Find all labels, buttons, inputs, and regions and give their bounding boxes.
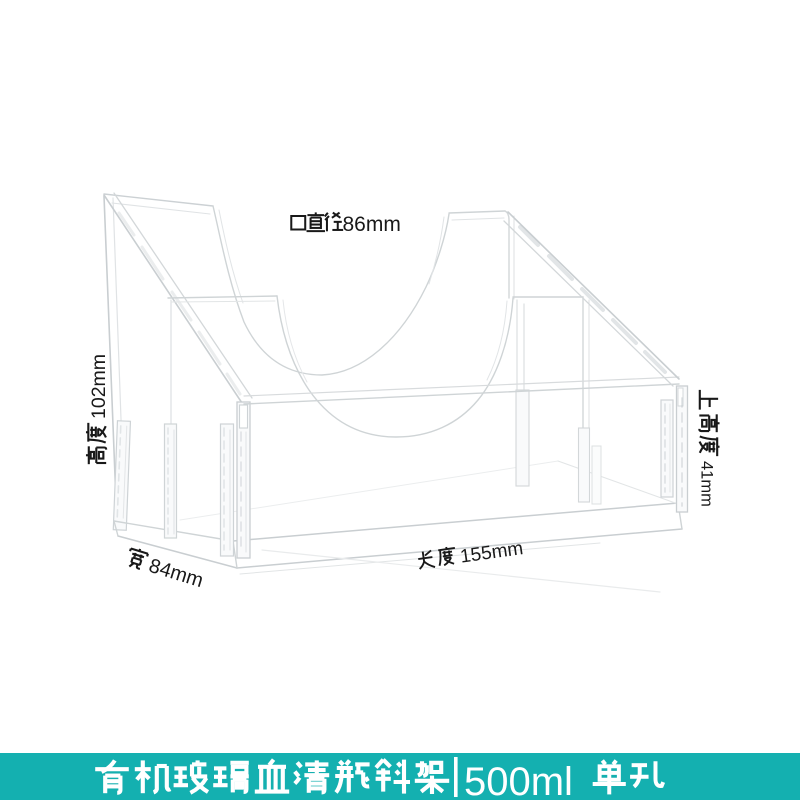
svg-text:86mm: 86mm: [343, 213, 401, 236]
svg-text:41mm: 41mm: [698, 461, 716, 507]
svg-text:102mm: 102mm: [88, 354, 110, 419]
svg-text:500ml: 500ml: [464, 760, 573, 800]
